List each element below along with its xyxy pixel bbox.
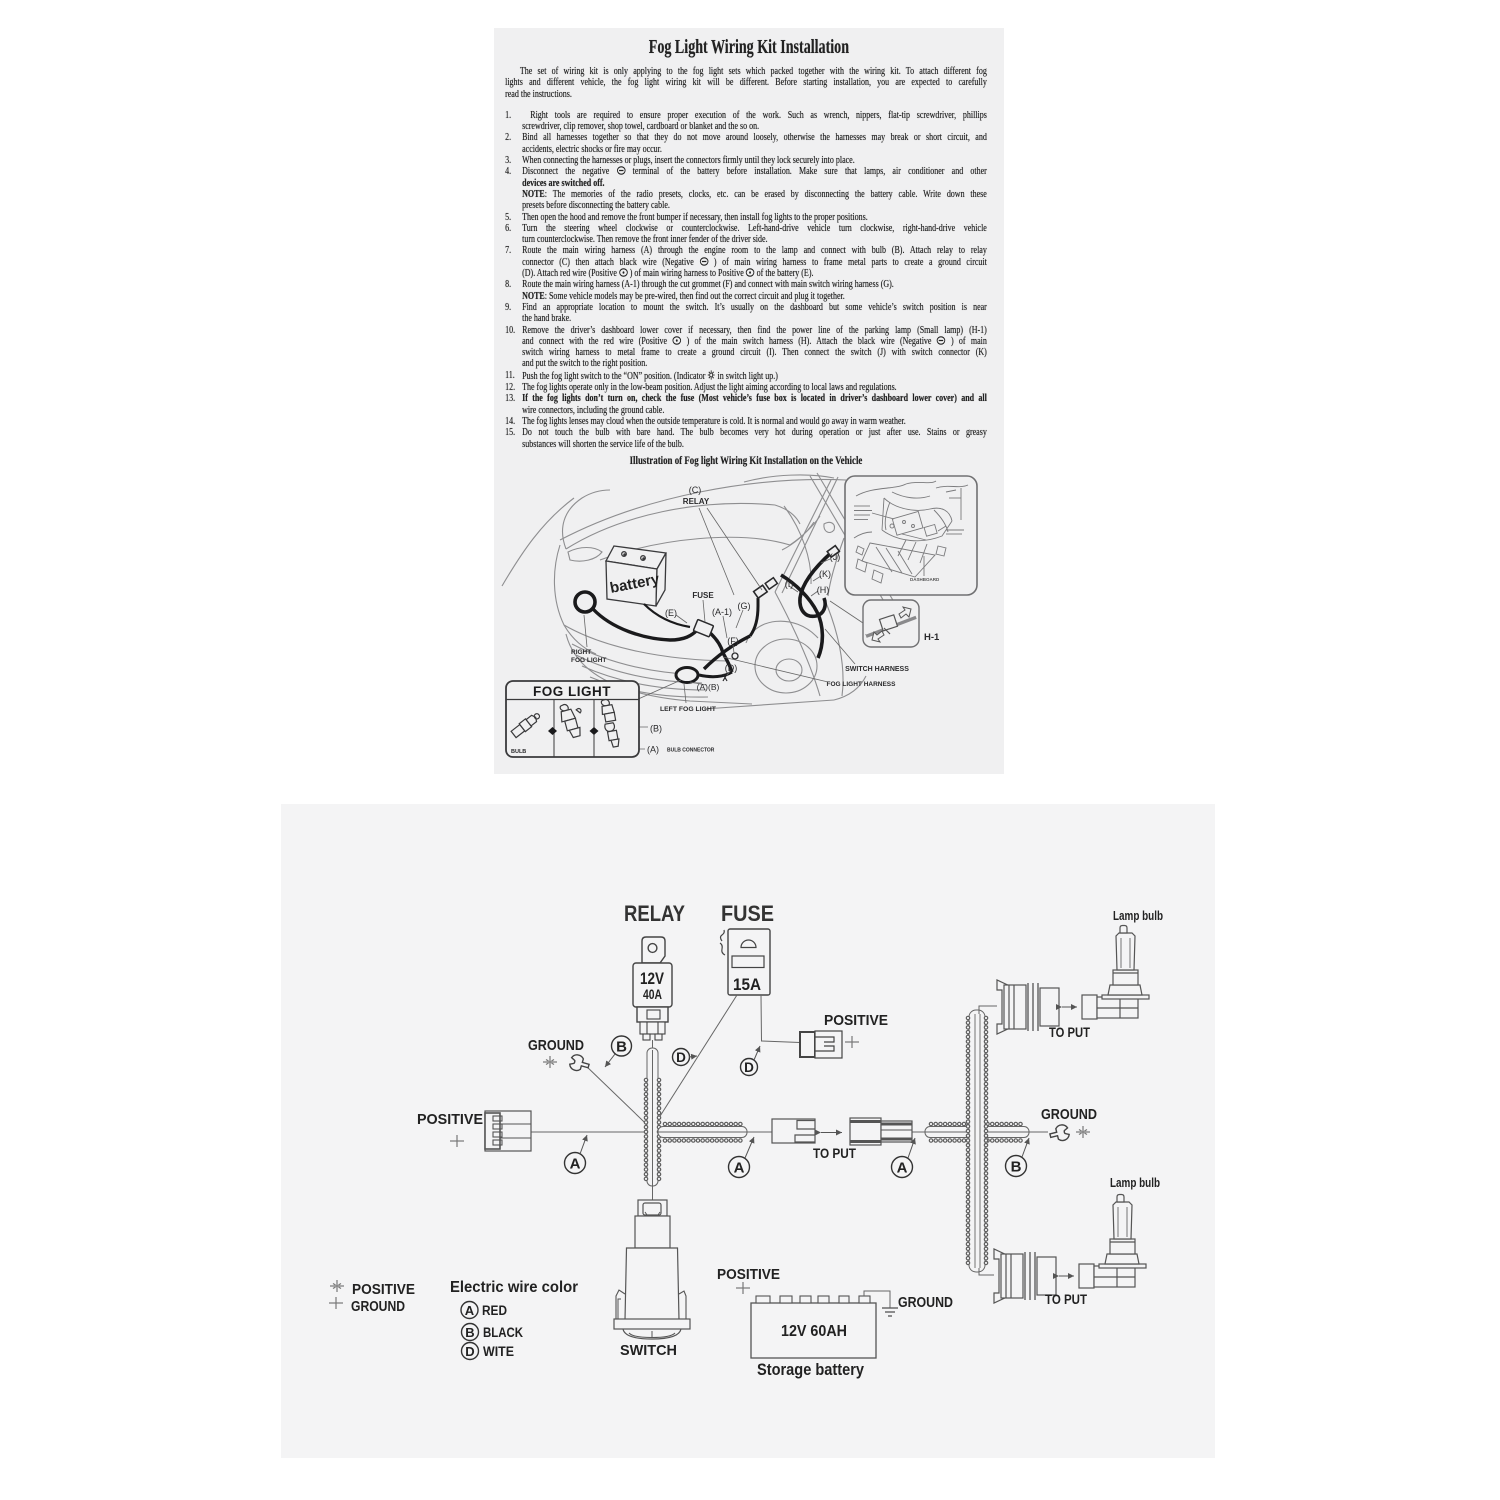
svg-text:(D): (D) [725,663,738,673]
svg-text:D: D [465,1344,474,1359]
svg-text:LEFT FOG LIGHT: LEFT FOG LIGHT [660,706,717,713]
svg-text:GROUND: GROUND [528,1037,584,1054]
svg-text:TO PUT: TO PUT [1049,1025,1091,1040]
svg-text:12V: 12V [640,969,665,988]
svg-text:Lamp bulb: Lamp bulb [1113,909,1163,923]
svg-text:SWITCH HARNESS: SWITCH HARNESS [845,666,909,673]
svg-text:FOG LIGHT HARNESS: FOG LIGHT HARNESS [827,681,897,688]
svg-text:SWITCH: SWITCH [620,1342,677,1359]
svg-text:40A: 40A [643,987,662,1002]
svg-text:A: A [570,1156,581,1173]
svg-text:B: B [616,1039,627,1056]
svg-text:A: A [897,1160,908,1177]
svg-text:A: A [465,1303,475,1318]
svg-text:BULB: BULB [511,749,526,755]
svg-text:GROUND: GROUND [1041,1106,1097,1123]
svg-text:GROUND: GROUND [351,1299,405,1315]
svg-text:DASHBOARD: DASHBOARD [910,577,940,582]
svg-text:(C): (C) [689,485,702,495]
svg-text:(F): (F) [727,636,739,646]
svg-text:15A: 15A [733,975,761,994]
svg-text:(H): (H) [817,585,830,595]
svg-text:12V 60AH: 12V 60AH [781,1323,847,1340]
svg-text:(A-1): (A-1) [712,607,732,617]
svg-text:RIGHT: RIGHT [571,649,591,656]
svg-text:POSITIVE: POSITIVE [824,1012,888,1029]
svg-text:RELAY: RELAY [683,497,710,506]
svg-text:D: D [676,1050,686,1065]
svg-text:TO PUT: TO PUT [813,1146,857,1161]
svg-text:TO PUT: TO PUT [1045,1292,1088,1307]
svg-text:A: A [734,1160,745,1177]
svg-text:B: B [1011,1159,1022,1176]
svg-text:(K): (K) [819,569,831,579]
svg-text:Electric wire color: Electric wire color [450,1279,578,1296]
svg-text:(E): (E) [665,608,677,618]
svg-text:(J): (J) [830,552,841,562]
svg-text:B: B [465,1325,474,1340]
svg-text:(A): (A) [647,745,659,755]
svg-text:BLACK: BLACK [483,1325,523,1340]
svg-text:RED: RED [482,1303,507,1318]
svg-text:Lamp bulb: Lamp bulb [1110,1176,1160,1190]
svg-text:FOG LIGHT: FOG LIGHT [533,684,611,699]
svg-text:POSITIVE: POSITIVE [417,1111,483,1128]
svg-text:D: D [744,1060,754,1075]
svg-text:FUSE: FUSE [721,901,774,926]
svg-text:(I): (I) [785,579,794,589]
svg-text:WITE: WITE [483,1344,514,1359]
svg-text:(A)(B): (A)(B) [697,682,720,692]
svg-text:GROUND: GROUND [898,1295,953,1311]
svg-text:POSITIVE: POSITIVE [352,1282,415,1298]
svg-text:POSITIVE: POSITIVE [717,1267,780,1283]
svg-text:(G): (G) [738,601,751,611]
svg-text:FOG LIGHT: FOG LIGHT [571,657,606,664]
svg-text:H-1: H-1 [924,632,940,643]
svg-text:BULB CONNECTOR: BULB CONNECTOR [667,748,715,754]
svg-text:RELAY: RELAY [624,901,685,926]
svg-text:(B): (B) [650,724,662,734]
svg-text:FUSE: FUSE [692,591,714,600]
svg-text:Storage battery: Storage battery [757,1361,865,1379]
